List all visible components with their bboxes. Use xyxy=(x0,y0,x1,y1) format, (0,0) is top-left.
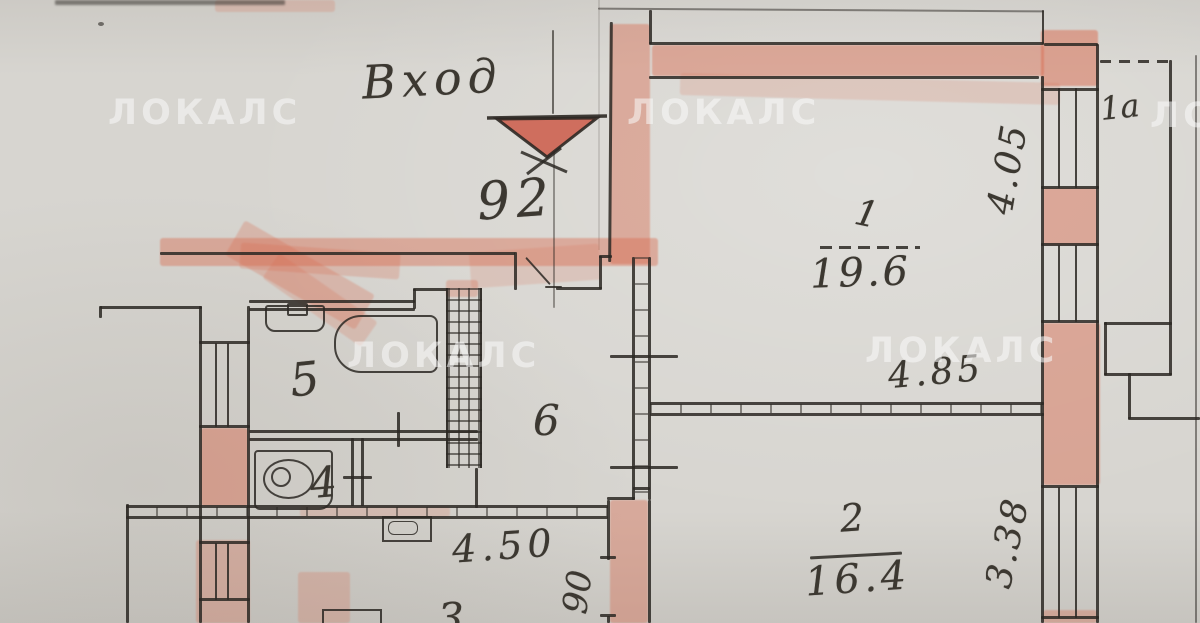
room-6-number: 6 xyxy=(533,396,560,445)
wall-hatching xyxy=(635,257,648,500)
wall xyxy=(249,300,415,303)
window-symbol xyxy=(199,425,250,428)
watermark: ЛОКАЛС xyxy=(865,331,1058,371)
wall xyxy=(607,616,610,623)
wall xyxy=(599,255,612,258)
window-symbol xyxy=(1041,320,1099,323)
entrance-axis-line xyxy=(552,30,554,114)
wall xyxy=(126,504,129,623)
watermark: ЛОКАЛС xyxy=(108,93,301,133)
wall-highlight xyxy=(1043,188,1097,245)
wall-highlight xyxy=(652,45,1044,76)
wall xyxy=(475,468,478,508)
dim-room2-depth: 3.38 xyxy=(978,489,1039,595)
window-symbol xyxy=(1075,245,1077,322)
balcony-wall xyxy=(1128,373,1131,419)
window-symbol xyxy=(1075,88,1077,188)
watermark: ЛОКАЛС xyxy=(1150,96,1200,136)
window-symbol xyxy=(1041,485,1099,488)
doorway-tick xyxy=(343,476,372,479)
room-1-area: 19.6 xyxy=(809,248,912,297)
wall-highlight xyxy=(610,500,648,623)
floor-plan-scan: Вход 92 1 19.6 2 16.4 3 4 5 6 1а 4.05 4.… xyxy=(0,0,1200,623)
window-symbol xyxy=(215,343,217,427)
balcony-dashed-line xyxy=(1100,60,1172,63)
wall xyxy=(247,306,250,623)
window-symbol xyxy=(1075,487,1077,618)
window-symbol xyxy=(215,543,217,600)
wall xyxy=(556,287,602,290)
window-symbol xyxy=(1058,245,1060,322)
dim-door-width: 90 xyxy=(555,564,602,619)
wall xyxy=(249,438,478,441)
balcony-wall xyxy=(1104,322,1107,375)
wall xyxy=(199,306,202,623)
wall xyxy=(633,487,650,490)
paper-edge-smudge xyxy=(55,0,285,5)
wall xyxy=(1096,44,1099,623)
dim-room3-width: 4.50 xyxy=(451,520,558,571)
window-symbol xyxy=(199,341,250,344)
window-symbol xyxy=(199,541,250,544)
wall xyxy=(99,306,102,318)
entrance-axis-number: 92 xyxy=(475,167,557,232)
stove-icon xyxy=(322,609,382,623)
wall xyxy=(648,500,651,623)
wall xyxy=(607,497,635,500)
balcony-wall xyxy=(1128,417,1200,420)
wall xyxy=(649,42,1044,45)
toilet-icon-inner xyxy=(271,467,291,487)
wall xyxy=(607,500,610,560)
room-1-number: 1 xyxy=(851,192,882,237)
wall xyxy=(361,438,364,506)
entrance-label: Вход xyxy=(361,48,504,109)
balcony-number: 1а xyxy=(1098,86,1141,128)
wall xyxy=(351,438,354,506)
wall-highlight xyxy=(1041,30,1098,86)
wall xyxy=(100,306,202,309)
wall xyxy=(126,516,608,519)
window-symbol xyxy=(1041,88,1099,91)
wall xyxy=(249,430,478,433)
wall xyxy=(413,288,447,291)
building-edge xyxy=(1195,55,1197,623)
axis-tick xyxy=(545,286,562,288)
window-symbol xyxy=(1058,487,1060,618)
doorway-tick xyxy=(610,466,678,469)
wall xyxy=(1042,10,1044,44)
wall-hatching xyxy=(650,404,1044,413)
room-2-area: 16.4 xyxy=(804,552,912,605)
tap-icon xyxy=(287,303,308,316)
watermark: ЛОКАЛС xyxy=(627,93,820,133)
wall xyxy=(514,252,517,290)
window-symbol xyxy=(227,543,229,600)
room-4-number: 4 xyxy=(308,457,339,508)
window-symbol xyxy=(1041,616,1099,619)
balcony-wall xyxy=(1104,373,1172,376)
paper-speck xyxy=(98,22,104,26)
balcony-wall xyxy=(1104,322,1172,325)
room-5-number: 5 xyxy=(287,351,322,408)
window-symbol xyxy=(1041,186,1099,189)
wall xyxy=(126,505,608,508)
window-symbol xyxy=(227,343,229,427)
doorway-tick xyxy=(600,614,616,617)
wall-highlight xyxy=(610,24,650,264)
window-symbol xyxy=(1058,88,1060,188)
doorway-tick xyxy=(610,355,678,358)
room-2-number: 2 xyxy=(838,495,865,541)
wall xyxy=(650,402,1044,405)
wall xyxy=(1044,43,1098,46)
wall xyxy=(598,8,1044,13)
wall-highlight xyxy=(196,540,250,623)
shaft-hatch xyxy=(446,288,482,468)
wall xyxy=(413,289,416,309)
wall xyxy=(649,76,1039,79)
doorway-tick xyxy=(397,412,400,447)
room-3-number: 3 xyxy=(437,594,464,623)
entrance-arrow-icon xyxy=(485,110,609,176)
sink-icon-inner xyxy=(388,521,418,535)
dim-room1-depth: 4.05 xyxy=(979,116,1037,222)
wall xyxy=(160,252,515,255)
doorway-tick xyxy=(600,556,616,559)
window-symbol xyxy=(1041,243,1099,246)
wall xyxy=(632,257,635,500)
wall xyxy=(650,413,1044,416)
wall xyxy=(649,10,652,44)
wall xyxy=(599,256,602,289)
wall-highlight xyxy=(201,428,248,506)
watermark: ЛОКАЛС xyxy=(347,336,540,376)
window-symbol xyxy=(199,598,250,601)
wall xyxy=(648,257,651,500)
